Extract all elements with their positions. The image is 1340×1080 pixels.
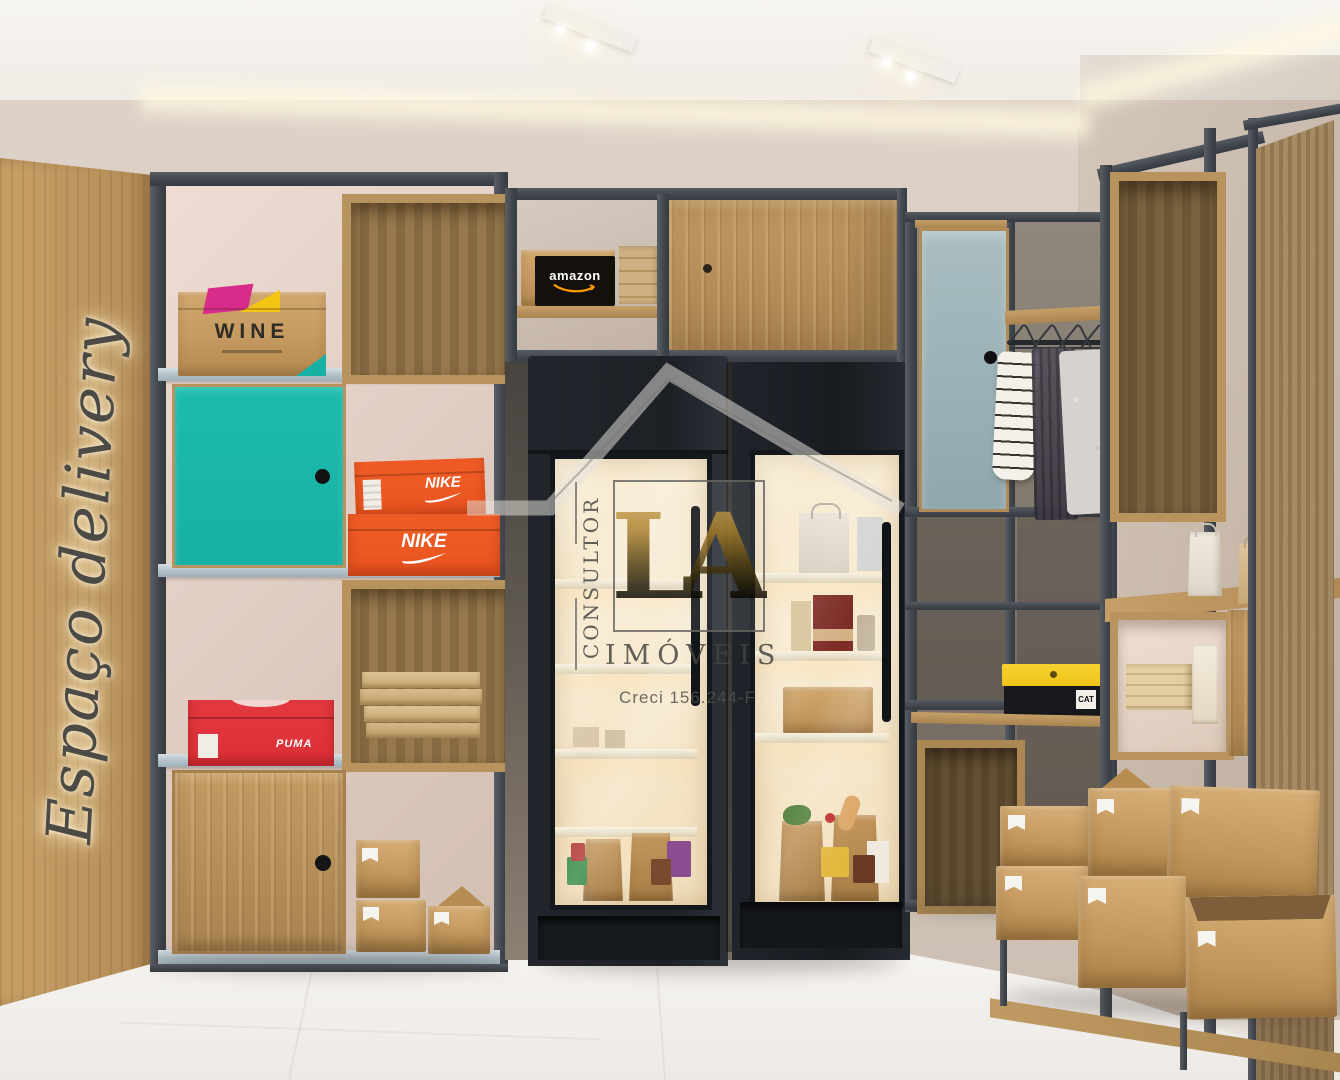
puma-lid-line bbox=[188, 717, 334, 719]
watermark-rule bbox=[575, 598, 577, 670]
door-finger-hole bbox=[315, 469, 330, 484]
cardboard-box bbox=[1078, 876, 1186, 988]
frame-top-rail bbox=[505, 188, 907, 200]
watermark-initials-frame: LA bbox=[613, 480, 765, 632]
parcel-label bbox=[1097, 799, 1114, 814]
shelf-leg bbox=[1000, 940, 1007, 1006]
parcel-label bbox=[1005, 876, 1022, 891]
door-knob bbox=[703, 264, 712, 273]
parcel-label bbox=[1088, 888, 1106, 904]
parcel-label bbox=[362, 848, 378, 862]
watermark-imoveis: IMÓVEIS bbox=[605, 640, 770, 671]
small-parcel-box bbox=[356, 900, 426, 952]
cardboard-box bbox=[1166, 785, 1320, 902]
spotlight bbox=[586, 42, 595, 51]
puma-side-label bbox=[198, 734, 218, 758]
parcel-label bbox=[1008, 815, 1025, 830]
small-parcel-box bbox=[428, 906, 490, 954]
nike-swoosh-icon bbox=[400, 552, 448, 565]
delivery-room-scene: Espaço delivery WINE bbox=[0, 0, 1340, 1080]
upper-cabinet-run: amazon bbox=[505, 188, 907, 364]
frame-post bbox=[657, 194, 669, 362]
cat-box-label: CAT bbox=[1076, 690, 1096, 709]
white-box-stack bbox=[1192, 646, 1218, 724]
wine-tagline-bar bbox=[222, 350, 282, 353]
watermark-license: Creci 156.244-F bbox=[605, 688, 770, 708]
small-parcel-box bbox=[356, 840, 420, 898]
puma-box: PUMA bbox=[188, 700, 334, 766]
parcel-label bbox=[434, 912, 449, 925]
watermark-consultor: CONSULTOR bbox=[579, 478, 607, 676]
wine-box-lid-line bbox=[178, 308, 326, 310]
nike-wordmark: NIKE bbox=[401, 531, 446, 552]
wood-cabinet-door bbox=[172, 770, 346, 954]
flat-parcel-stack bbox=[1126, 664, 1192, 710]
wine-box: WINE bbox=[178, 292, 326, 376]
watermark-initials: LA bbox=[611, 487, 768, 626]
watermark: CONSULTOR LA IMÓVEIS Creci 156.244-F bbox=[455, 358, 925, 726]
wine-logo: WINE bbox=[178, 320, 326, 344]
frame-top-rail bbox=[150, 172, 508, 186]
flat-parcel-stack bbox=[619, 246, 661, 304]
spotlight bbox=[906, 72, 915, 81]
shelf-leg bbox=[1180, 1012, 1187, 1070]
wall-sign-text: Espaço delivery bbox=[32, 314, 133, 845]
gift-bag-white bbox=[1188, 532, 1222, 596]
tall-wood-cubby bbox=[1110, 172, 1226, 522]
wine-box-deco-teal bbox=[296, 354, 326, 376]
cardboard-box bbox=[1000, 806, 1088, 868]
nike-box-side-label bbox=[363, 479, 382, 510]
cabinet-sliding-door bbox=[669, 200, 897, 350]
cat-box-lid-dot bbox=[1050, 671, 1057, 678]
puma-lid-formstrip bbox=[232, 700, 290, 707]
cardboard-box-open bbox=[1185, 895, 1337, 1020]
frame-rail bbox=[905, 602, 1117, 610]
parcel-label bbox=[363, 907, 379, 921]
amazon-smile-icon bbox=[551, 283, 599, 294]
puma-wordmark: PUMA bbox=[276, 738, 312, 750]
teal-cabinet-door bbox=[172, 384, 346, 568]
frame-post bbox=[505, 188, 517, 364]
cabinet-shelf bbox=[515, 306, 661, 318]
parcel-label bbox=[1181, 798, 1200, 815]
watermark-rule bbox=[575, 482, 577, 544]
fridge-plinth bbox=[538, 916, 720, 960]
cat-box: CAT bbox=[1002, 664, 1102, 716]
spotlight bbox=[556, 26, 565, 35]
door-finger-hole bbox=[984, 351, 997, 364]
parcel-label bbox=[1198, 931, 1216, 947]
fridge-plinth bbox=[740, 902, 902, 948]
cat-wordmark: CAT bbox=[1078, 695, 1094, 704]
amazon-wordmark: amazon bbox=[549, 268, 600, 283]
amazon-box-front: amazon bbox=[535, 256, 615, 306]
wood-cubby-open bbox=[342, 194, 516, 384]
spotlight bbox=[882, 58, 891, 67]
cabinet-top-strip bbox=[915, 220, 1007, 228]
left-unit-floor-shadow bbox=[155, 952, 505, 972]
box-open-top bbox=[1189, 895, 1331, 921]
door-finger-hole bbox=[315, 855, 331, 871]
amazon-box: amazon bbox=[521, 250, 615, 306]
cardboard-box bbox=[996, 866, 1088, 940]
gift-bag-handle bbox=[1195, 523, 1217, 537]
